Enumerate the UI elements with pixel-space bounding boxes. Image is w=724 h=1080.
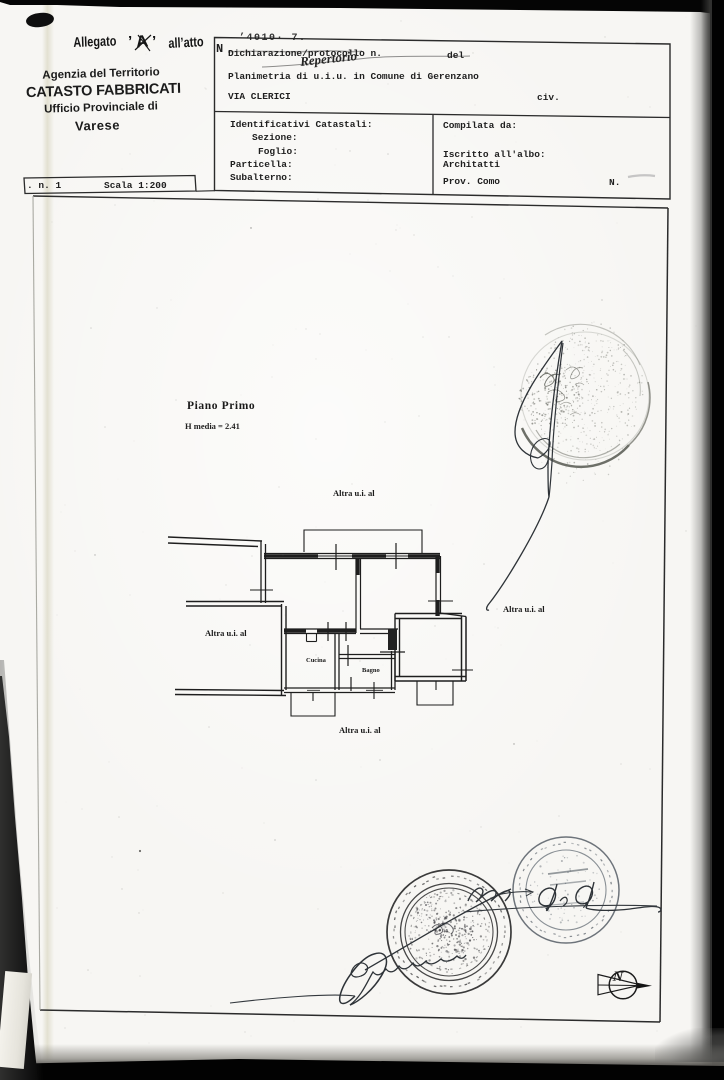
svg-text:N: N bbox=[611, 969, 624, 985]
